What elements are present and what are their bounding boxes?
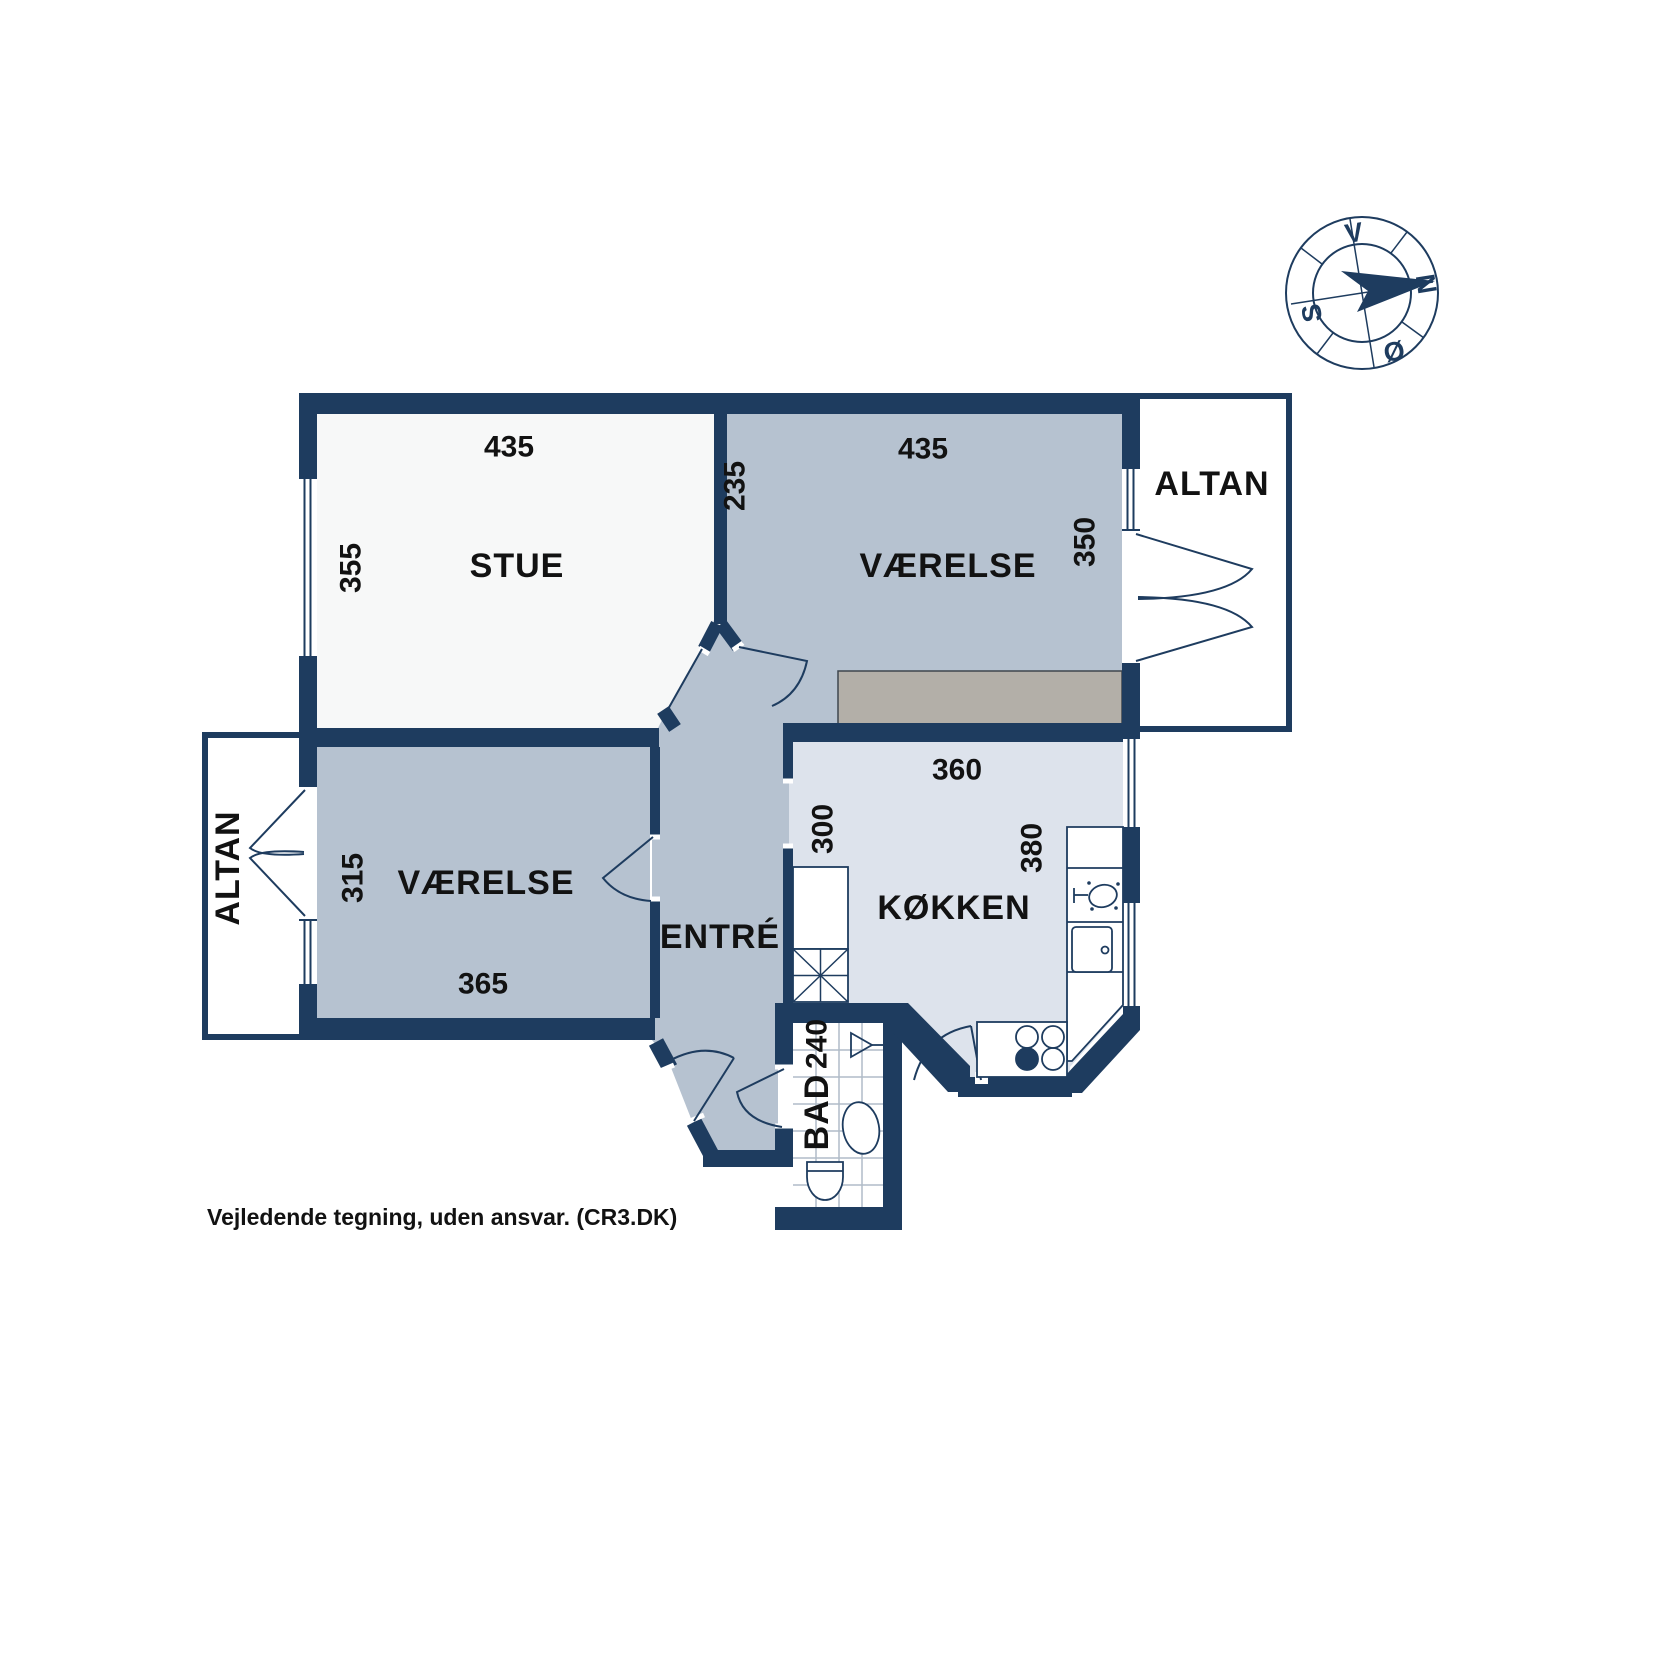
stue-height-label: 355	[335, 543, 368, 593]
koekken-width-label: 360	[932, 754, 982, 787]
koekken-left-label: 300	[807, 804, 840, 854]
vaerelse-ne-label: VÆRELSE	[859, 547, 1036, 585]
wall-segment	[299, 657, 317, 787]
compass-east: Ø	[1381, 335, 1406, 368]
wall-segment	[783, 1003, 893, 1023]
wall-segment	[790, 723, 1123, 742]
vaerelse-ne-height-label: 350	[1069, 517, 1102, 567]
burner-active	[1016, 1048, 1038, 1070]
wall-segment	[1122, 412, 1140, 468]
vaerelse-w-label: VÆRELSE	[397, 864, 574, 902]
wall-segment	[650, 747, 660, 835]
wall-segment	[714, 412, 727, 624]
altan-ne-floor	[1146, 399, 1286, 726]
stue-width-label: 435	[484, 431, 534, 464]
window-vaerelse-ne	[1122, 468, 1140, 530]
disclaimer-text: Vejledende tegning, uden ansvar. (CR3.DK…	[207, 1204, 677, 1230]
window-koekken-upper	[1123, 738, 1140, 828]
vaerelse-w-width-label: 365	[458, 968, 508, 1001]
wall-segment	[650, 900, 660, 1018]
altan-w-wall	[202, 732, 208, 1040]
altan-w-wall	[202, 732, 300, 738]
altan-ne-wall	[1140, 393, 1292, 399]
wardrobe	[838, 671, 1122, 726]
vaerelse-w-height-label: 315	[337, 853, 370, 903]
vaerelse-ne-width-label: 435	[898, 433, 948, 466]
wall-segment	[299, 393, 1140, 414]
wall-segment	[775, 1207, 902, 1230]
window-stue	[299, 478, 317, 657]
wall-segment	[883, 1023, 902, 1230]
floor-plan-page: N V S Ø 435 STUE 355 235 435 VÆRELSE 350…	[0, 0, 1654, 1654]
koekken-height-label: 380	[1016, 823, 1049, 873]
wall-segment	[783, 848, 793, 1003]
wall-segment	[299, 728, 659, 747]
entre-label: ENTRÉ	[660, 918, 780, 956]
window-vaerelse-w	[299, 920, 317, 985]
toilet	[807, 1162, 843, 1200]
wall-segment	[775, 1003, 793, 1068]
floor-plan-canvas: N V S Ø 435 STUE 355 235 435 VÆRELSE 350…	[0, 0, 1654, 1654]
vaerelse-ne-inner-label: 235	[719, 461, 752, 511]
altan-w-wall	[202, 1034, 317, 1040]
wall-segment	[299, 412, 317, 478]
altan-ne-label: ALTAN	[1154, 465, 1269, 503]
stue-label: STUE	[470, 547, 565, 585]
altan-w-label: ALTAN	[209, 810, 247, 925]
compass-west: V	[1343, 217, 1365, 249]
appliance-asterisk	[793, 949, 848, 1002]
altan-ne-wall	[1140, 726, 1292, 732]
kitchen-counter-left	[793, 867, 848, 949]
wall-segment	[703, 1150, 783, 1167]
bad-label: BAD	[798, 1074, 836, 1151]
wall-segment	[1123, 828, 1140, 902]
wall-stub	[663, 710, 675, 728]
altan-ne-wall	[1286, 393, 1292, 732]
bad-width-label: 240	[801, 1019, 834, 1069]
compass-south: S	[1296, 302, 1328, 324]
window-koekken-lower	[1123, 902, 1140, 1007]
kitchen-sink	[1072, 927, 1112, 972]
wall-segment	[1122, 663, 1140, 738]
koekken-label: KØKKEN	[877, 889, 1030, 927]
wall-segment	[299, 1018, 655, 1040]
